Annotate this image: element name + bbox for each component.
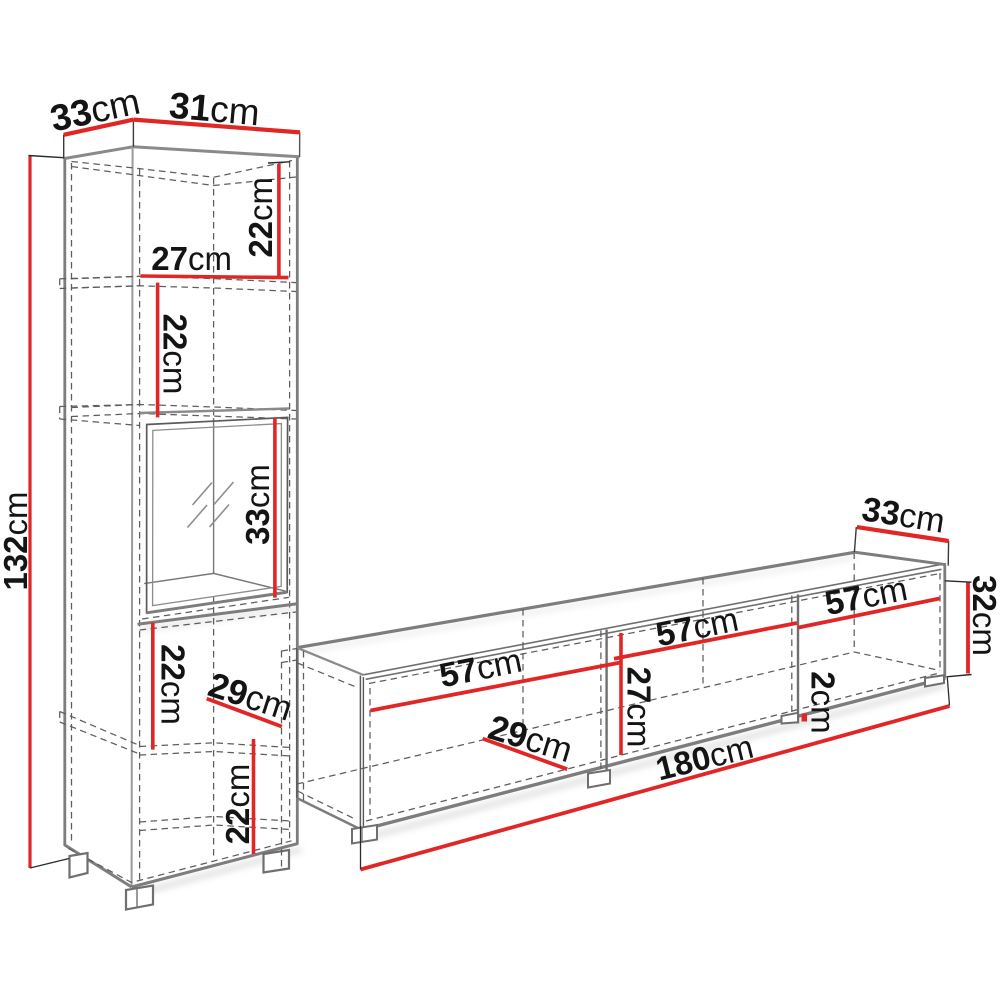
- svg-text:57cm: 57cm: [436, 642, 525, 696]
- svg-text:32cm: 32cm: [966, 575, 1000, 656]
- svg-text:2cm: 2cm: [804, 671, 841, 733]
- svg-text:27cm: 27cm: [621, 667, 658, 748]
- svg-text:180cm: 180cm: [652, 728, 757, 788]
- svg-text:29cm: 29cm: [204, 665, 297, 729]
- svg-text:57cm: 57cm: [653, 601, 742, 655]
- svg-text:27cm: 27cm: [151, 240, 232, 277]
- svg-text:132cm: 132cm: [0, 491, 34, 590]
- svg-text:29cm: 29cm: [484, 708, 577, 770]
- svg-text:33cm: 33cm: [239, 464, 276, 545]
- svg-text:22cm: 22cm: [155, 644, 192, 725]
- svg-text:22cm: 22cm: [156, 314, 193, 395]
- svg-text:31cm: 31cm: [168, 85, 262, 134]
- svg-text:22cm: 22cm: [242, 177, 279, 258]
- svg-text:22cm: 22cm: [219, 764, 256, 845]
- svg-text:57cm: 57cm: [822, 570, 911, 623]
- svg-text:33cm: 33cm: [859, 490, 947, 541]
